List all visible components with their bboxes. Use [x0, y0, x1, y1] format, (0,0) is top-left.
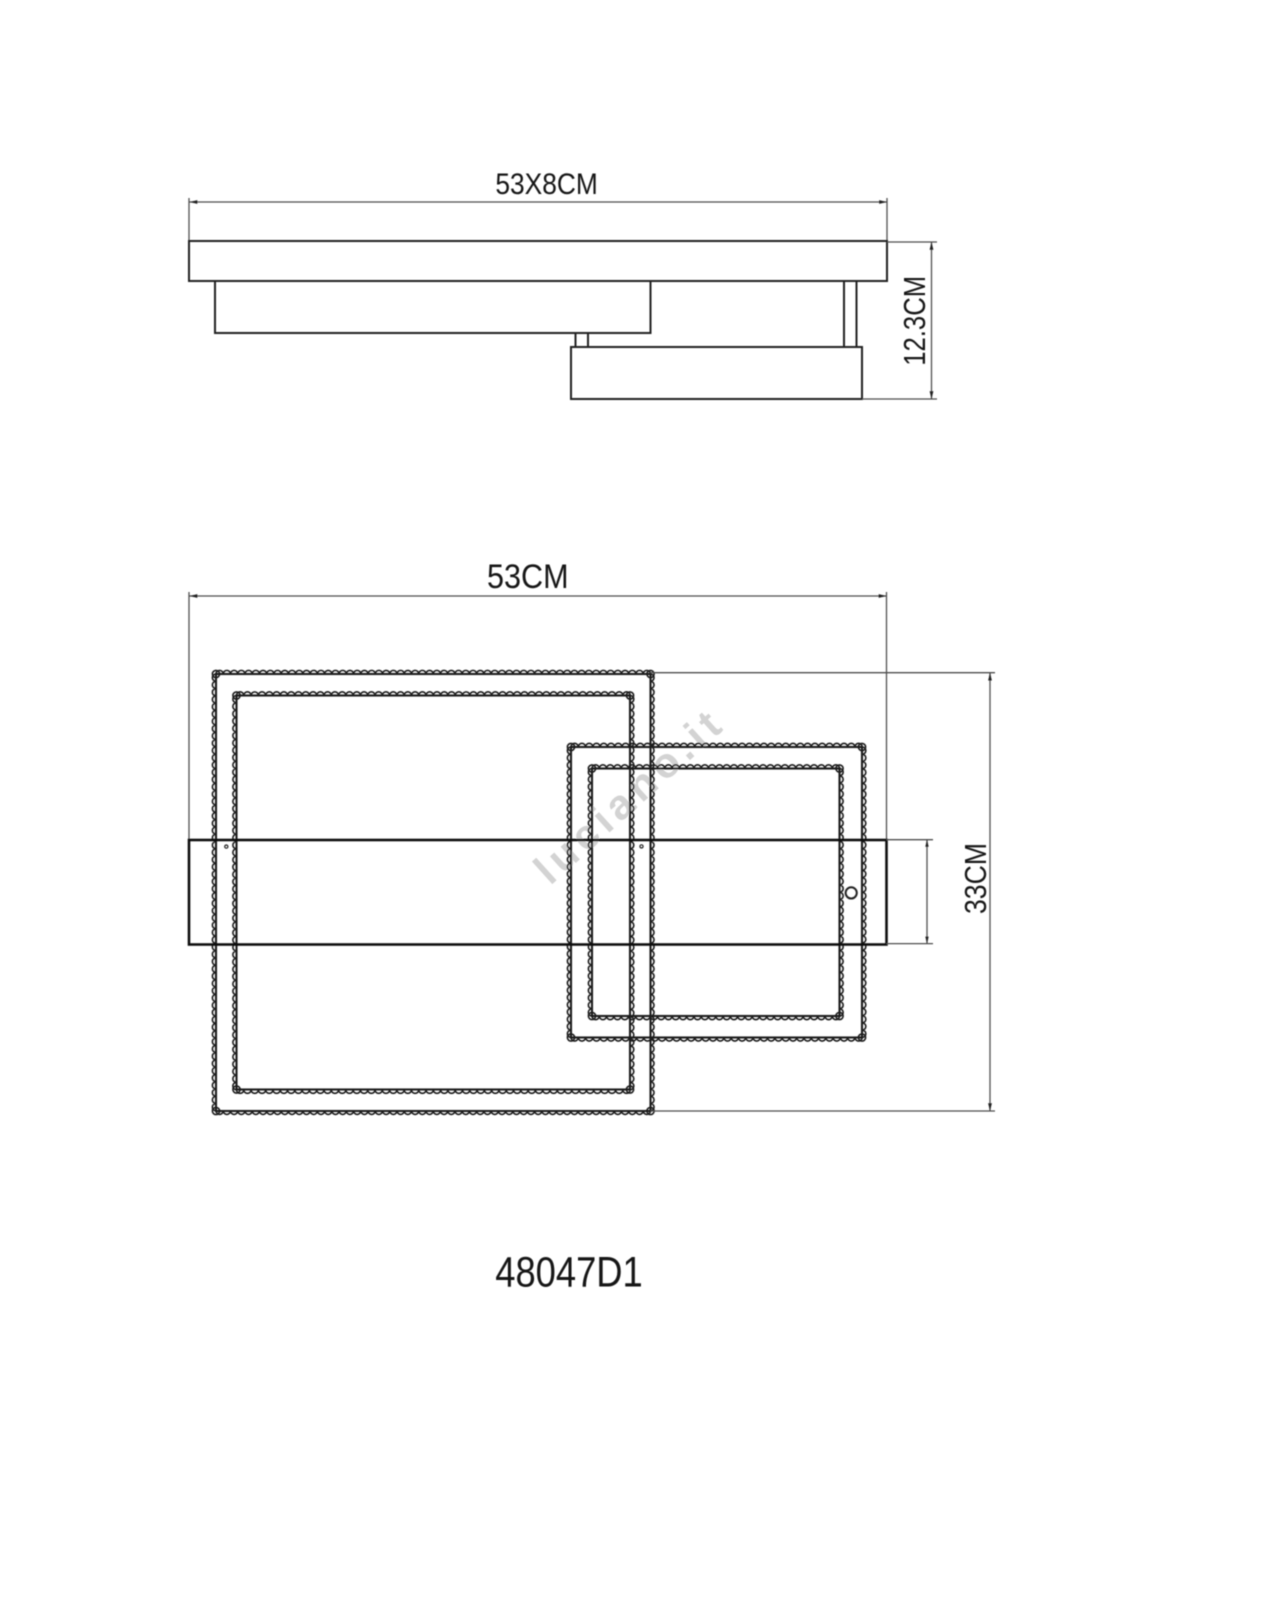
svg-text:53CM: 53CM: [487, 558, 569, 596]
svg-text:12.3CM: 12.3CM: [898, 276, 932, 366]
svg-text:48047D1: 48047D1: [495, 1248, 643, 1296]
svg-text:53X8CM: 53X8CM: [495, 168, 598, 201]
svg-text:33CM: 33CM: [960, 843, 993, 914]
